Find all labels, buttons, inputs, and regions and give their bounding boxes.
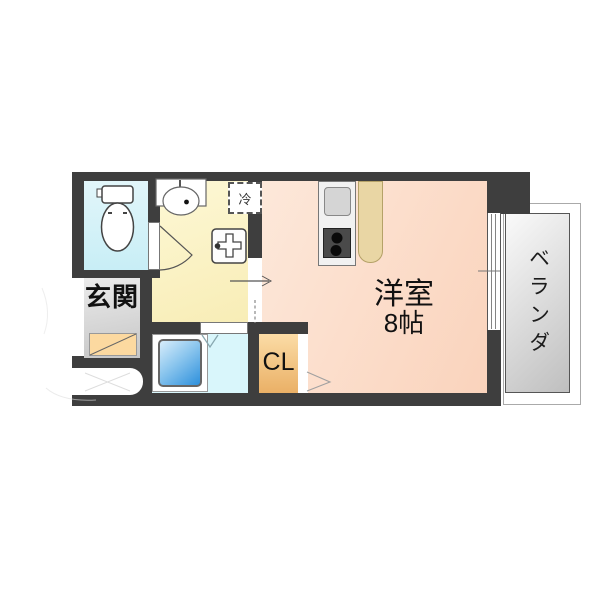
lineart-overlay <box>0 0 600 600</box>
burner-icon <box>332 233 343 244</box>
toilet-door-swing <box>160 226 192 270</box>
scan-artifacts <box>42 288 130 400</box>
step-diagonal-line <box>90 334 136 355</box>
washbasin-icon <box>156 179 206 215</box>
closet-door-symbol <box>307 372 330 391</box>
floorplan: ベランダ CL 冷 玄関 洋室 8帖 <box>0 0 600 600</box>
toilet-icon <box>97 186 134 251</box>
bathroom-door-symbol <box>202 335 218 347</box>
water-heater-icon <box>212 229 246 263</box>
main-room-door-slide <box>230 276 271 323</box>
window-lines <box>478 214 500 329</box>
burner-icon <box>331 245 342 256</box>
